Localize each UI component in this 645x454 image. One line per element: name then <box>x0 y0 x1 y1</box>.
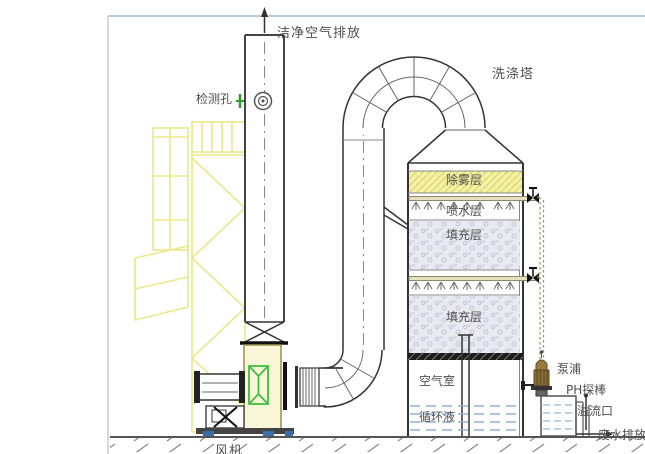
label-pump: 泵浦 <box>557 363 581 377</box>
label-packing-layer-lower: 填充层 <box>408 311 520 325</box>
fan-unit <box>194 345 319 437</box>
label-fan: 风机 <box>215 445 243 454</box>
fan-base <box>196 428 294 437</box>
label-wastewater-discharge: 废水排放 <box>598 429 645 443</box>
spray-header-1 <box>409 197 537 201</box>
clean-air-arrow <box>261 7 268 33</box>
duct-bottom-elbow <box>325 350 382 407</box>
inspection-port <box>236 93 272 110</box>
duct-vertical <box>343 128 384 350</box>
tower-hood <box>408 130 523 163</box>
ribbed-flex-connector <box>300 368 319 406</box>
duct-support-brace <box>384 207 408 229</box>
label-spray-layer: 喷水层 <box>408 205 520 219</box>
label-clean-air-discharge: 洁净空气排放 <box>277 27 361 42</box>
label-scrubber-tower: 洗涤塔 <box>492 68 534 83</box>
label-air-chamber: 空气室 <box>419 375 455 389</box>
label-overflow-port: 溢流口 <box>577 405 613 419</box>
duct-top-bend <box>343 57 485 128</box>
scrubber-system-drawing <box>0 0 645 454</box>
label-inspection-port: 检测孔 <box>196 93 232 107</box>
stack-transition <box>240 322 288 343</box>
spray-header-2 <box>409 277 537 281</box>
exhaust-stack <box>245 35 284 322</box>
ground-hatch <box>110 438 645 452</box>
circulation-pump <box>521 350 552 396</box>
support-grid <box>408 353 523 360</box>
spray-nozzles-2 <box>412 282 514 290</box>
label-ph-probe: PH探棒 <box>566 384 606 398</box>
label-circulating-liquid: 循环液 <box>419 411 455 425</box>
fan-motor <box>194 371 245 403</box>
outlet-flange <box>283 362 287 410</box>
label-demister-layer: 除雾层 <box>408 174 520 188</box>
outlet-flange-2 <box>295 366 298 408</box>
label-packing-layer-upper: 填充层 <box>408 229 520 243</box>
diagram-canvas: 洁净空气排放 检测孔 洗涤塔 除雾层 喷水层 填充层 填充层 空气室 循环液 泵… <box>0 0 645 454</box>
pump-tank <box>541 396 576 436</box>
belt-drive <box>206 406 244 428</box>
